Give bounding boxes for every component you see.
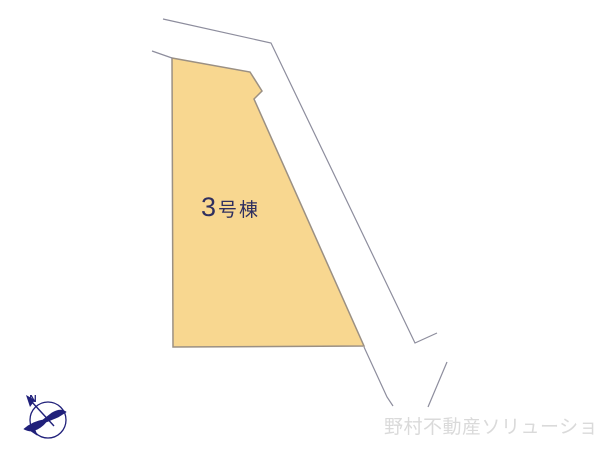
site-plan-canvas: N 3号棟 野村不動産ソリューションズ [0, 0, 600, 450]
compass-north-label: N [29, 394, 36, 405]
lot-suffix-text: 号棟 [218, 201, 260, 220]
site-plan-drawing: N [0, 0, 600, 450]
road-spur-line [428, 362, 447, 407]
lot-name-label: 3号棟 [201, 194, 260, 221]
compass-icon: N [24, 394, 66, 438]
road-lower-extension-line [364, 347, 393, 406]
lot-number-text: 3 [201, 194, 218, 221]
company-watermark: 野村不動産ソリューションズ [384, 418, 600, 437]
road-upper-band-line [152, 51, 172, 58]
